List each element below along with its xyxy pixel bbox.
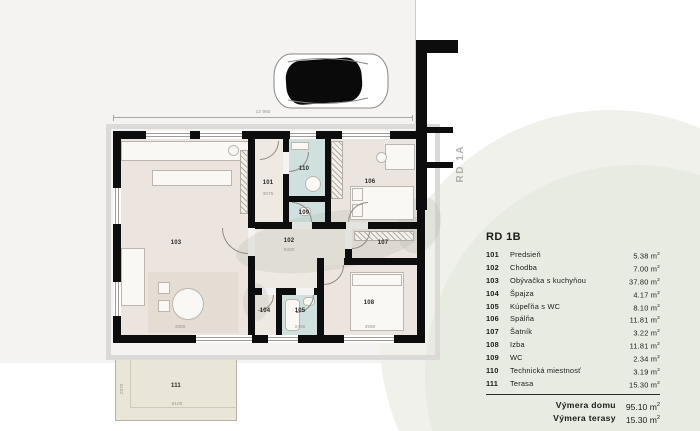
car-top-view <box>272 50 390 112</box>
dimension-text: 2465 <box>295 325 306 330</box>
total-area: 15.30 m2 <box>626 412 660 426</box>
chair <box>158 300 170 312</box>
window <box>268 335 298 343</box>
room-id: 105 <box>486 301 510 314</box>
wall <box>317 258 324 265</box>
legend-total-row: Výmera terasy15.30 m2 <box>486 412 660 426</box>
dimension-text: 4550 <box>175 325 186 330</box>
room-area: 8.10 m2 <box>633 301 660 314</box>
terrace-door <box>196 335 252 343</box>
window <box>200 131 242 139</box>
kitchen-island <box>152 170 232 186</box>
plan-room-number: 105 <box>295 308 306 314</box>
wall <box>344 258 417 265</box>
room-id: 107 <box>486 326 510 339</box>
room-name: Kúpeľňa s WC <box>510 301 633 314</box>
room-id: 103 <box>486 275 510 288</box>
dining-table <box>172 288 204 320</box>
room-name: Špajza <box>510 288 633 301</box>
room-area: 5.38 m2 <box>633 249 660 262</box>
legend-row: 103Obývačka s kuchyňou37.80 m2 <box>486 275 660 288</box>
total-area: 95.10 m2 <box>626 399 660 413</box>
room-area: 3.22 m2 <box>633 326 660 339</box>
wall <box>248 288 262 295</box>
desk <box>385 144 415 170</box>
window <box>113 188 121 224</box>
neighbor-wall <box>427 127 453 133</box>
bedroom-closet <box>331 141 343 199</box>
desk-chair <box>376 152 387 163</box>
window <box>344 335 394 343</box>
pillow <box>352 188 363 201</box>
wall <box>317 265 324 335</box>
sofa <box>121 248 145 306</box>
wall <box>314 288 324 295</box>
total-label: Výmera domu <box>486 399 626 413</box>
wall <box>325 139 331 222</box>
floorplan-page: { "colors":{"plot":"#f4f3f1","wall":"#0d… <box>0 0 700 431</box>
terrace <box>115 357 237 421</box>
room-area: 15.30 m2 <box>629 378 660 391</box>
legend-totals: Výmera domu95.10 m2Výmera terasy15.30 m2 <box>486 399 660 427</box>
room-name: Technická miestnosť <box>510 365 633 378</box>
room-name: Chodba <box>510 262 633 275</box>
kitchen-tall-units <box>240 150 248 214</box>
room-id: 102 <box>486 262 510 275</box>
total-label: Výmera terasy <box>486 412 626 426</box>
room-id: 101 <box>486 249 510 262</box>
room-area: 7.00 m2 <box>633 262 660 275</box>
room-name: Šatník <box>510 326 633 339</box>
plan-room-number: 103 <box>171 240 182 246</box>
room-area: 11.81 m2 <box>630 339 660 352</box>
dimension-text: 12 960 <box>256 110 271 115</box>
washbasin <box>291 142 309 150</box>
window <box>290 131 316 139</box>
room-id: 111 <box>486 378 510 391</box>
wall <box>276 288 282 335</box>
plan-room-number: 108 <box>364 300 375 306</box>
pillow <box>352 274 402 286</box>
kitchen-sink <box>228 145 239 156</box>
legend-total-row: Výmera domu95.10 m2 <box>486 399 660 413</box>
room-area: 2.34 m2 <box>633 352 660 365</box>
neighbor-wall <box>416 135 427 210</box>
legend-row: 108Izba11.81 m2 <box>486 339 660 352</box>
room-id: 106 <box>486 313 510 326</box>
room-area: 4.17 m2 <box>633 288 660 301</box>
room-name: Terasa <box>510 378 629 391</box>
room-id: 104 <box>486 288 510 301</box>
wall <box>280 288 296 295</box>
terrace-inner-line <box>130 358 237 408</box>
window <box>146 131 190 139</box>
legend-row: 102Chodba7.00 m2 <box>486 262 660 275</box>
legend-row: 106Spálňa11.81 m2 <box>486 313 660 326</box>
neighbor-house-label: RD 1A <box>455 145 466 183</box>
legend-row: 107Šatník3.22 m2 <box>486 326 660 339</box>
wall <box>312 222 346 229</box>
room-area: 11.81 m2 <box>630 313 660 326</box>
room-name: Obývačka s kuchyňou <box>510 275 629 288</box>
window <box>342 131 390 139</box>
chair <box>158 282 170 294</box>
plan-room-number: 107 <box>378 240 389 246</box>
room-name: WC <box>510 352 633 365</box>
room-id: 108 <box>486 339 510 352</box>
wall <box>255 222 292 229</box>
room-id: 110 <box>486 365 510 378</box>
legend-title: RD 1B <box>486 231 660 243</box>
room-area: 3.19 m2 <box>633 365 660 378</box>
plan-room-number: 109 <box>299 210 310 216</box>
room-name: Izba <box>510 339 630 352</box>
dimension-text: 3075 <box>263 192 274 197</box>
legend-rows: 101Predsieň5.38 m2102Chodba7.00 m2103Obý… <box>486 249 660 391</box>
wall <box>289 196 325 202</box>
plan-room-number: 106 <box>365 179 376 185</box>
wall <box>248 256 255 335</box>
plan-room-number: 101 <box>263 180 274 186</box>
legend-row: 105Kúpeľňa s WC8.10 m2 <box>486 301 660 314</box>
boiler <box>305 176 321 192</box>
legend-divider <box>486 394 660 395</box>
legend-row: 104Špajza4.17 m2 <box>486 288 660 301</box>
neighbor-wall <box>416 40 458 53</box>
plan-room-number: 104 <box>260 308 271 314</box>
legend-row: 111Terasa15.30 m2 <box>486 378 660 391</box>
wall <box>283 139 289 152</box>
room-area: 37.80 m2 <box>629 275 660 288</box>
dimension-text: 5000 <box>284 248 295 253</box>
neighbor-wall <box>427 162 453 168</box>
legend-row: 110Technická miestnosť3.19 m2 <box>486 365 660 378</box>
legend-row: 109WC2.34 m2 <box>486 352 660 365</box>
room-name: Predsieň <box>510 249 633 262</box>
wall <box>248 139 255 228</box>
plan-room-number: 111 <box>171 383 181 389</box>
dimension-line <box>113 117 413 118</box>
dimension-text: 5100 <box>172 402 183 407</box>
room-id: 109 <box>486 352 510 365</box>
plan-room-number: 110 <box>299 166 309 172</box>
window <box>113 282 121 316</box>
legend: RD 1B 101Predsieň5.38 m2102Chodba7.00 m2… <box>486 231 660 426</box>
plan-room-number: 102 <box>284 238 295 244</box>
room-name: Spálňa <box>510 313 630 326</box>
wall <box>368 222 417 229</box>
neighbor-wall <box>416 40 427 135</box>
dimension-text: 2970 <box>120 384 125 395</box>
legend-row: 101Predsieň5.38 m2 <box>486 249 660 262</box>
dimension-text: 3590 <box>365 325 376 330</box>
